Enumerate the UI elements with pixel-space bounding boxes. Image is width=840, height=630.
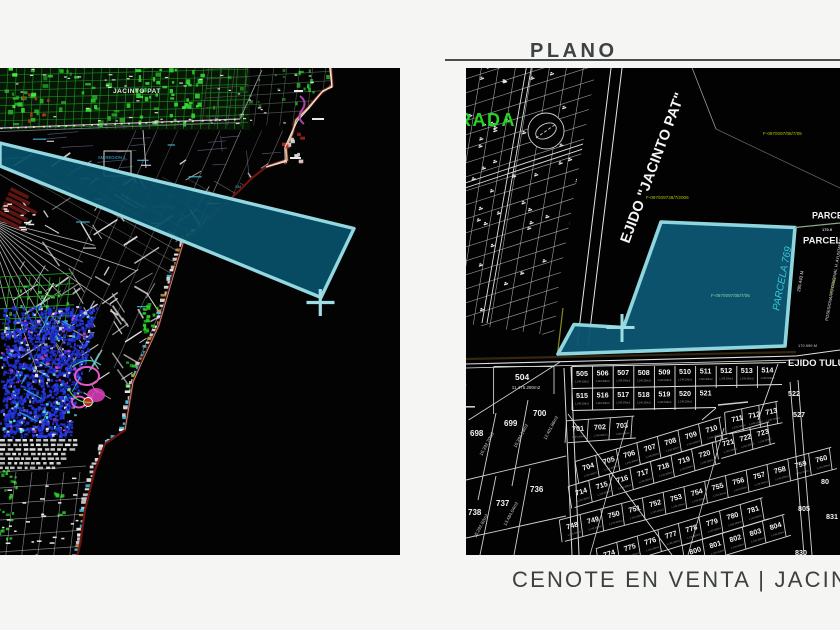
svg-text:11,475.280m2: 11,475.280m2 — [512, 385, 541, 390]
svg-text:702: 702 — [594, 422, 607, 432]
svg-text:170.9: 170.9 — [822, 227, 833, 232]
svg-text:1,249.309m2: 1,249.309m2 — [616, 380, 631, 383]
svg-text:1,249.309m2: 1,249.309m2 — [637, 379, 652, 382]
svg-text:805: 805 — [798, 504, 810, 513]
svg-text:831: 831 — [826, 512, 838, 521]
svg-text:518: 518 — [638, 390, 650, 399]
svg-text:504: 504 — [515, 372, 529, 382]
svg-text:512: 512 — [720, 366, 732, 375]
svg-text:EJIDO TULUM: EJIDO TULUM — [788, 358, 840, 369]
svg-text:700: 700 — [533, 409, 547, 418]
svg-text:514: 514 — [761, 365, 773, 374]
svg-text:521: 521 — [700, 389, 712, 398]
svg-text:510: 510 — [679, 367, 691, 376]
svg-text:738: 738 — [468, 508, 482, 517]
svg-text:698: 698 — [470, 429, 484, 438]
svg-text:RADA: RADA — [466, 110, 516, 130]
svg-text:522: 522 — [788, 389, 800, 398]
svg-text:PARCEL: PARCEL — [812, 211, 840, 221]
svg-text:830: 830 — [795, 548, 807, 555]
svg-text:527: 527 — [793, 410, 805, 419]
svg-text:506: 506 — [597, 369, 609, 378]
svg-text:1,249.309m2: 1,249.309m2 — [657, 379, 672, 382]
svg-text:170.999 M: 170.999 M — [798, 343, 817, 348]
svg-text:1,249.309m2: 1,249.309m2 — [596, 380, 611, 383]
svg-text:507: 507 — [617, 368, 629, 377]
svg-text:PARCELA 7: PARCELA 7 — [803, 236, 840, 247]
svg-text:1,249.309m2: 1,249.309m2 — [719, 378, 734, 381]
svg-text:F-097/I097/08/7/06: F-097/I097/08/7/06 — [711, 293, 750, 298]
svg-text:1,249.309m2: 1,249.309m2 — [678, 379, 693, 382]
svg-text:515: 515 — [576, 391, 588, 400]
svg-text:699: 699 — [504, 419, 518, 428]
svg-text:SM REGION 1: SM REGION 1 — [98, 155, 126, 160]
svg-text:829: 829 — [778, 553, 790, 555]
svg-text:511: 511 — [700, 367, 712, 376]
svg-text:1,249.309m2: 1,249.309m2 — [616, 402, 631, 405]
svg-text:520: 520 — [679, 389, 691, 398]
svg-text:519: 519 — [658, 389, 670, 398]
svg-text:517: 517 — [617, 390, 629, 399]
svg-text:1,249.309m2: 1,249.309m2 — [596, 402, 611, 405]
svg-text:516: 516 — [597, 391, 609, 400]
svg-text:F-097/I097/08/7/05: F-097/I097/08/7/05 — [763, 131, 802, 136]
svg-text:JACINTO PAT: JACINTO PAT — [113, 88, 161, 95]
svg-text:509: 509 — [658, 367, 670, 376]
svg-text:80: 80 — [821, 477, 829, 486]
svg-text:1,249.309m2: 1,249.309m2 — [678, 401, 693, 404]
svg-text:1,249.309m2: 1,249.309m2 — [637, 401, 652, 404]
svg-text:F-097/I09728/7/2006: F-097/I09728/7/2006 — [646, 195, 689, 200]
svg-text:737: 737 — [496, 499, 510, 508]
svg-text:508: 508 — [638, 368, 650, 377]
svg-text:1,249.309m2: 1,249.309m2 — [575, 403, 590, 406]
svg-text:1,249.309m2: 1,249.309m2 — [740, 377, 755, 380]
svg-text:1,249.309m2: 1,249.309m2 — [699, 378, 714, 381]
svg-text:1,249.309m2: 1,249.309m2 — [657, 401, 672, 404]
svg-text:1,249.309m2: 1,249.309m2 — [575, 381, 590, 384]
svg-text:505: 505 — [576, 369, 588, 378]
svg-text:513: 513 — [741, 366, 753, 375]
svg-text:736: 736 — [530, 485, 544, 494]
svg-text:701: 701 — [572, 424, 585, 434]
